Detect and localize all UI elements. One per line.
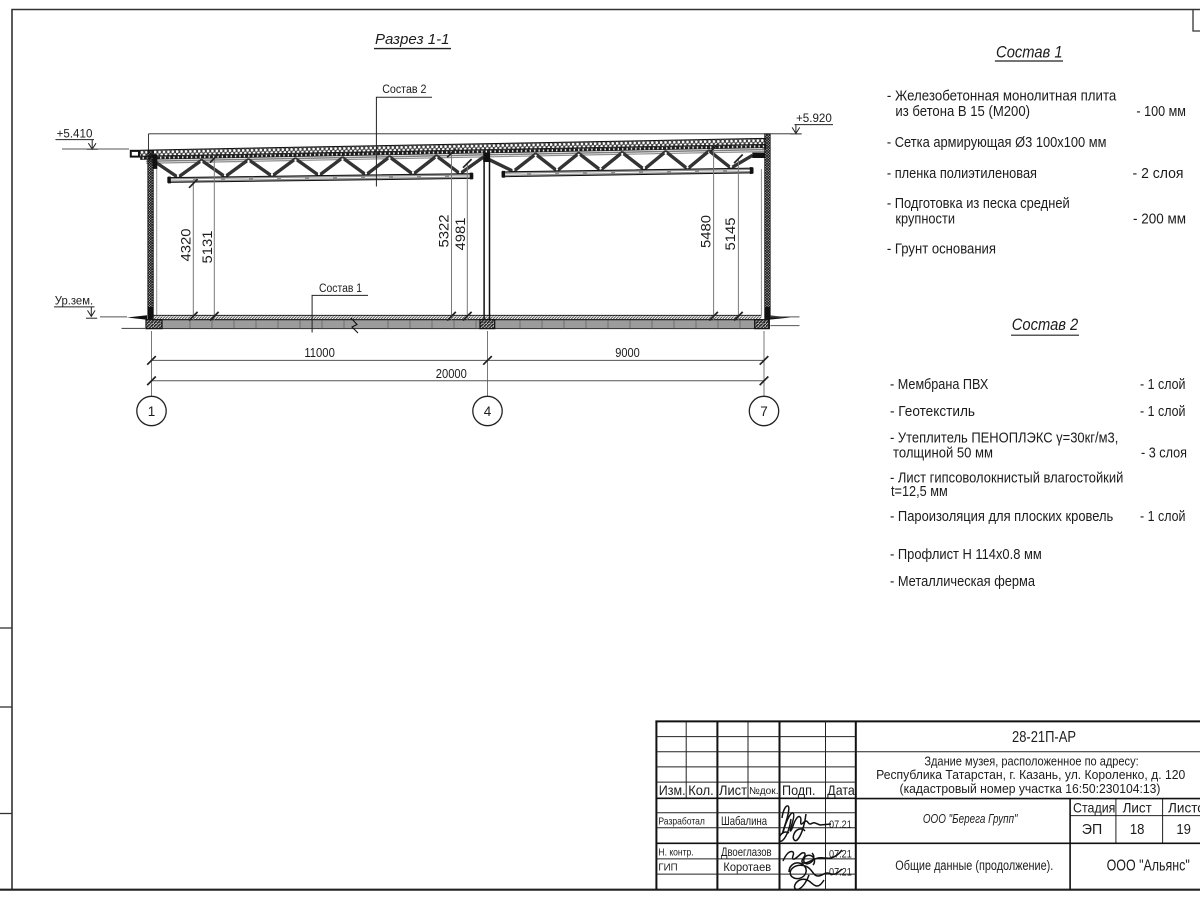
svg-text:07.21: 07.21	[829, 849, 852, 861]
svg-text:- Сетка армирующая Ø3 100х100: - Сетка армирующая Ø3 100х100 мм	[887, 135, 1107, 151]
svg-text:- Подготовка из песка средней: - Подготовка из песка средней	[887, 196, 1070, 212]
svg-text:Двоеглазов: Двоеглазов	[721, 845, 772, 859]
svg-text:Кол.: Кол.	[688, 782, 714, 798]
svg-text:- 100 мм: - 100 мм	[1136, 104, 1186, 120]
svg-text:- 200 мм: - 200 мм	[1133, 212, 1186, 228]
svg-text:+5.410: +5.410	[57, 128, 93, 140]
svg-text:Состав 2: Состав 2	[1012, 315, 1079, 334]
svg-text:Лист: Лист	[1123, 799, 1153, 815]
svg-text:Разработал: Разработал	[658, 816, 705, 828]
svg-text:11000: 11000	[304, 345, 335, 360]
svg-text:07.21: 07.21	[829, 819, 852, 831]
svg-text:20000: 20000	[436, 366, 467, 381]
svg-text:- 2 слоя: - 2 слоя	[1133, 166, 1184, 182]
svg-text:Шабалина: Шабалина	[721, 814, 767, 828]
svg-text:7: 7	[760, 404, 768, 419]
svg-text:Состав 1: Состав 1	[319, 283, 362, 295]
svg-text:- Профлист Н 114х0.8 мм: - Профлист Н 114х0.8 мм	[890, 547, 1042, 563]
svg-text:толщиной 50 мм: толщиной 50 мм	[893, 446, 993, 462]
svg-text:Подп.: Подп.	[782, 782, 816, 798]
svg-text:Изм.: Изм.	[659, 782, 686, 798]
svg-text:28-21П-АР: 28-21П-АР	[1012, 729, 1076, 746]
svg-text:t=12,5 мм: t=12,5 мм	[891, 484, 948, 500]
svg-text:Стадия: Стадия	[1073, 799, 1115, 815]
svg-text:ЭП: ЭП	[1082, 822, 1102, 838]
svg-text:- 1 слой: - 1 слой	[1140, 377, 1186, 393]
svg-text:ГИП: ГИП	[658, 862, 677, 874]
svg-text:(кадастровый номер участка 16:: (кадастровый номер участка 16:50:230104:…	[900, 781, 1161, 796]
svg-text:- Геотекстиль: - Геотекстиль	[890, 404, 975, 420]
svg-text:5131: 5131	[200, 231, 215, 264]
svg-text:Ур.зем.: Ур.зем.	[55, 295, 93, 307]
svg-text:ООО "Берега Групп": ООО "Берега Групп"	[923, 812, 1018, 826]
svg-text:крупности: крупности	[895, 212, 955, 228]
svg-text:4: 4	[484, 404, 492, 419]
svg-text:4981: 4981	[453, 218, 468, 251]
svg-text:Н. контр.: Н. контр.	[658, 847, 693, 859]
svg-text:+5.920: +5.920	[796, 113, 832, 125]
svg-text:- 1 слой: - 1 слой	[1140, 404, 1186, 420]
svg-text:из бетона В 15 (М200): из бетона В 15 (М200)	[895, 104, 1030, 120]
svg-text:- Мембрана ПВХ: - Мембрана ПВХ	[890, 377, 989, 393]
svg-text:Республика Татарстан, г. Казан: Республика Татарстан, г. Казань, ул. Кор…	[876, 767, 1185, 782]
svg-text:- Металлическая ферма: - Металлическая ферма	[890, 574, 1036, 590]
svg-text:Лист: Лист	[719, 782, 748, 798]
svg-text:1: 1	[148, 404, 156, 419]
svg-text:19: 19	[1176, 822, 1191, 838]
svg-text:Дата: Дата	[827, 782, 855, 798]
svg-text:9000: 9000	[615, 345, 640, 360]
svg-text:Состав 2: Состав 2	[382, 84, 426, 96]
svg-text:№док.: №док.	[749, 786, 779, 797]
svg-text:- Утеплитель ПЕНОПЛЭКС γ=30кг/: - Утеплитель ПЕНОПЛЭКС γ=30кг/м3,	[890, 431, 1118, 447]
svg-text:ООО "Альянс": ООО "Альянс"	[1107, 858, 1190, 875]
svg-text:- 1 слой: - 1 слой	[1140, 509, 1186, 525]
svg-text:- Железобетонная монолитная п: - Железобетонная монолитная плита	[887, 88, 1117, 104]
svg-text:- 3 слоя: - 3 слоя	[1141, 446, 1187, 462]
svg-text:Листов: Листов	[1168, 799, 1200, 815]
svg-text:5145: 5145	[723, 218, 738, 251]
svg-text:Состав 1: Состав 1	[996, 42, 1063, 61]
svg-text:18: 18	[1130, 822, 1145, 838]
svg-text:Общие данные (продолжение).: Общие данные (продолжение).	[895, 858, 1053, 873]
svg-text:Коротаев: Коротаев	[723, 860, 771, 874]
svg-text:4320: 4320	[179, 229, 194, 262]
svg-text:- Грунт основания: - Грунт основания	[887, 241, 996, 257]
svg-text:07.21: 07.21	[829, 867, 852, 879]
svg-text:- пленка полиэтиленовая: - пленка полиэтиленовая	[887, 166, 1037, 182]
svg-text:Разрез 1-1: Разрез 1-1	[375, 32, 450, 48]
svg-text:- Пароизоляция для плоских кро: - Пароизоляция для плоских кровель	[890, 509, 1113, 525]
svg-text:5480: 5480	[699, 215, 714, 248]
svg-text:5322: 5322	[437, 215, 452, 248]
